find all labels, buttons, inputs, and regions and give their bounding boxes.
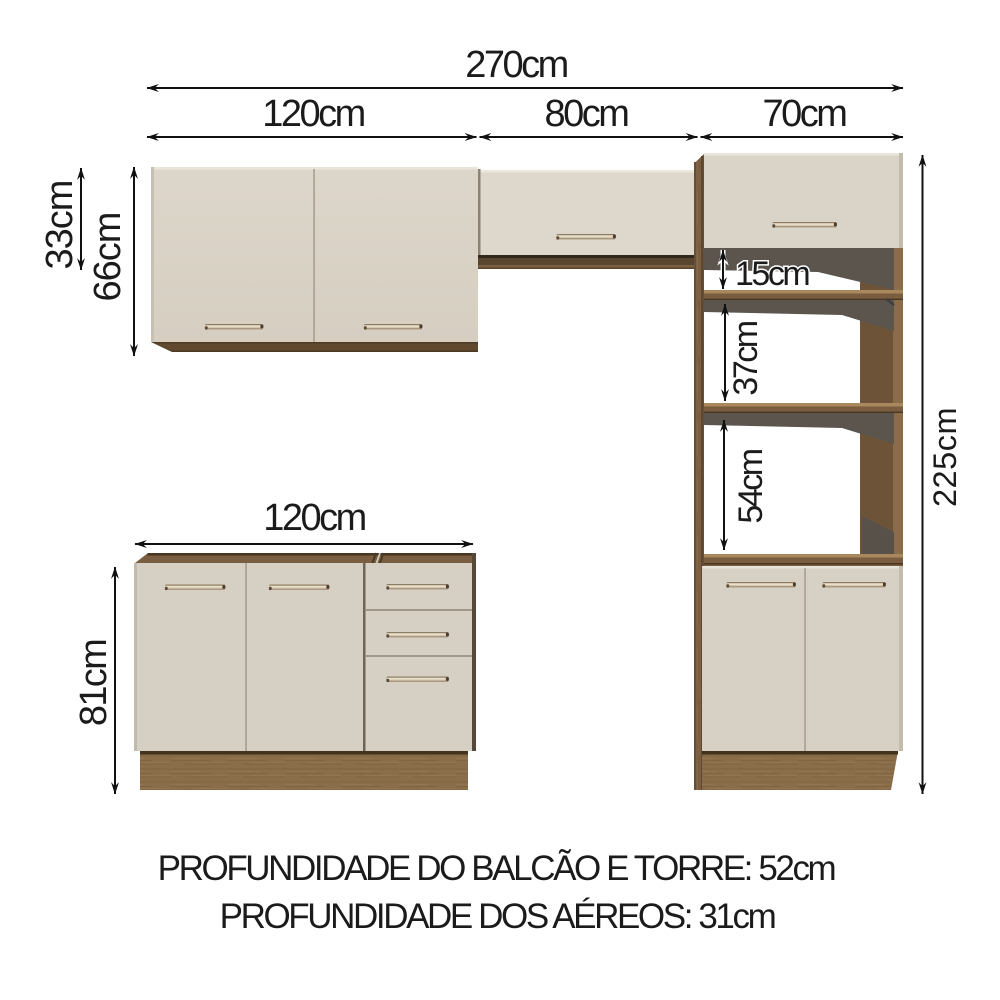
svg-text:81cm: 81cm [73, 640, 115, 726]
svg-text:PROFUNDIDADE DO BALCÃO E TORRE: PROFUNDIDADE DO BALCÃO E TORRE: 52cm [158, 849, 835, 888]
svg-text:37cm: 37cm [727, 321, 765, 395]
svg-text:225cm: 225cm [927, 407, 963, 507]
svg-text:66cm: 66cm [87, 213, 129, 302]
svg-text:PROFUNDIDADE DOS AÉREOS: 31cm: PROFUNDIDADE DOS AÉREOS: 31cm [220, 897, 775, 936]
svg-text:70cm: 70cm [763, 93, 847, 135]
svg-text:54cm: 54cm [732, 449, 770, 523]
svg-text:270cm: 270cm [465, 44, 567, 86]
svg-text:120cm: 120cm [263, 497, 365, 539]
svg-text:120cm: 120cm [262, 93, 364, 135]
svg-text:33cm: 33cm [39, 181, 81, 270]
svg-text:15cm: 15cm [735, 255, 809, 293]
svg-text:80cm: 80cm [545, 93, 629, 135]
